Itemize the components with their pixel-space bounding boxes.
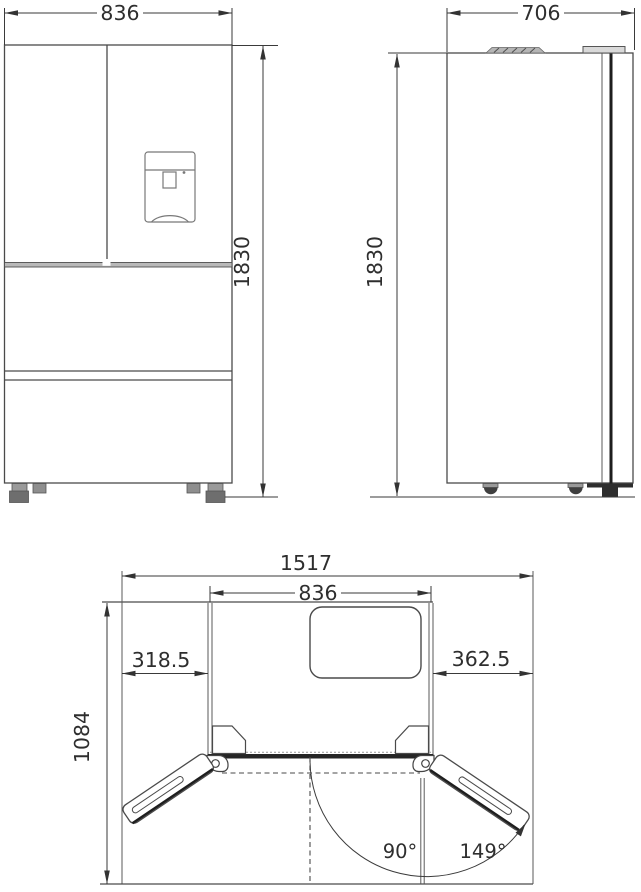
angle-149-label: 149° [460, 840, 507, 863]
front-height-label: 1830 [230, 236, 254, 288]
left-clearance-label: 318.5 [132, 648, 191, 672]
foot-right-big [206, 491, 225, 503]
front-width-label: 836 [100, 1, 139, 25]
right-clearance-label: 362.5 [452, 647, 511, 671]
side-height-label: 1830 [363, 236, 387, 288]
front-face-band [208, 754, 434, 759]
foot-left-small [33, 484, 46, 494]
foot-right-small [187, 484, 200, 494]
water-dispenser [145, 152, 195, 222]
top-vent-grille [486, 48, 545, 54]
refrigerator-dimension-diagram: 836 1830 [0, 0, 641, 892]
diagram-canvas: 836 1830 [0, 0, 641, 892]
door-bottom-bar [587, 484, 633, 488]
total-width-label: 1517 [280, 551, 332, 575]
top-cabinet-width-label: 836 [298, 581, 337, 605]
dispenser-outline [145, 152, 195, 222]
open-depth-label: 1084 [70, 711, 94, 763]
top-cover-box [310, 607, 421, 678]
angle-90-label: 90° [383, 840, 418, 863]
door-drawer-band [5, 263, 233, 268]
foot-left-big [10, 491, 29, 503]
side-depth-label: 706 [521, 1, 560, 25]
band-center-notch [103, 262, 111, 266]
rear-foot [602, 488, 618, 498]
dispenser-button [183, 171, 186, 174]
hinge-cover-cap [583, 47, 625, 54]
